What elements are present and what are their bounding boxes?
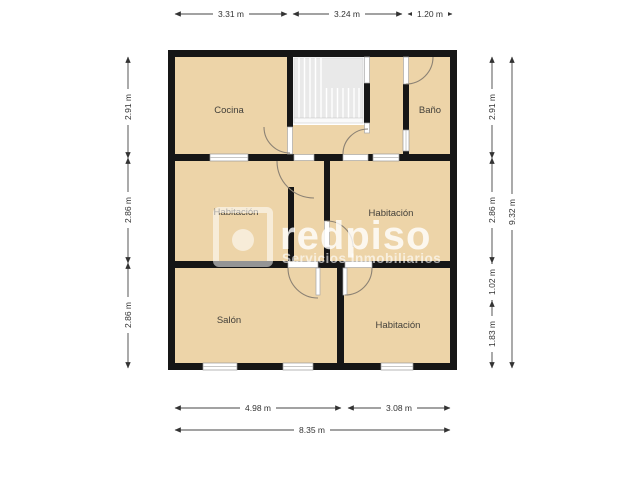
- dim-label-right-4: 1.83 m: [487, 321, 497, 347]
- dim-label-right-3: 1.02 m: [487, 269, 497, 295]
- dim-label-right-2: 2.86 m: [487, 197, 497, 223]
- stairs-landing: [294, 118, 363, 123]
- wall-bath-left-lower: [403, 151, 409, 154]
- door-frame-corridor: [294, 155, 314, 161]
- wall-outer-top: [168, 50, 457, 57]
- door-leaf-salon: [316, 268, 320, 295]
- door-frame-bath: [404, 57, 409, 84]
- opening-stairs-bottom: [365, 123, 370, 133]
- dim-label-bottom-2: 3.08 m: [386, 403, 412, 413]
- opening-stairs-top: [365, 57, 370, 83]
- wall-stairs-right: [364, 83, 370, 123]
- wall-a-segment: [175, 154, 210, 161]
- wall-kitchen-right: [287, 57, 293, 127]
- wall-a-segment: [368, 154, 373, 161]
- wall-a-segment: [399, 154, 450, 161]
- dim-label-bottom-total: 8.35 m: [299, 425, 325, 435]
- dim-label-right-total: 9.32 m: [507, 199, 517, 225]
- door-frame-hall-room: [343, 155, 368, 161]
- door-frame-kitchen: [288, 127, 293, 154]
- dim-label-top-2: 3.24 m: [334, 9, 360, 19]
- wall-a-segment: [314, 154, 343, 161]
- watermark-logo-dot-icon: [232, 229, 254, 251]
- wall-corridor-right-upper: [324, 161, 330, 221]
- floor-plan-svg: Cocina Baño Habitación Habitación Salón …: [0, 0, 640, 480]
- room-label-habitacion-bottom: Habitación: [376, 320, 421, 331]
- room-label-cocina: Cocina: [214, 105, 244, 116]
- door-leaf-bottom-room: [343, 268, 347, 295]
- wall-a-segment: [248, 154, 294, 161]
- room-label-bano: Baño: [419, 105, 441, 116]
- dim-label-left-2: 2.86 m: [123, 197, 133, 223]
- wall-outer-right: [450, 50, 457, 370]
- wall-bath-left-upper: [403, 84, 409, 130]
- watermark-tagline: Servicios Inmobiliarios: [282, 251, 441, 266]
- wall-outer-left: [168, 50, 175, 370]
- dim-label-bottom-1: 4.98 m: [245, 403, 271, 413]
- dim-label-left-3: 2.86 m: [123, 302, 133, 328]
- floor-plan-page: Cocina Baño Habitación Habitación Salón …: [0, 0, 640, 480]
- room-label-salon: Salón: [217, 315, 241, 326]
- dim-label-left-1: 2.91 m: [123, 94, 133, 120]
- dim-label-right-1: 2.91 m: [487, 94, 497, 120]
- dim-label-top-1: 3.31 m: [218, 9, 244, 19]
- dim-label-top-3: 1.20 m: [417, 9, 443, 19]
- stairs-icon: [291, 55, 366, 125]
